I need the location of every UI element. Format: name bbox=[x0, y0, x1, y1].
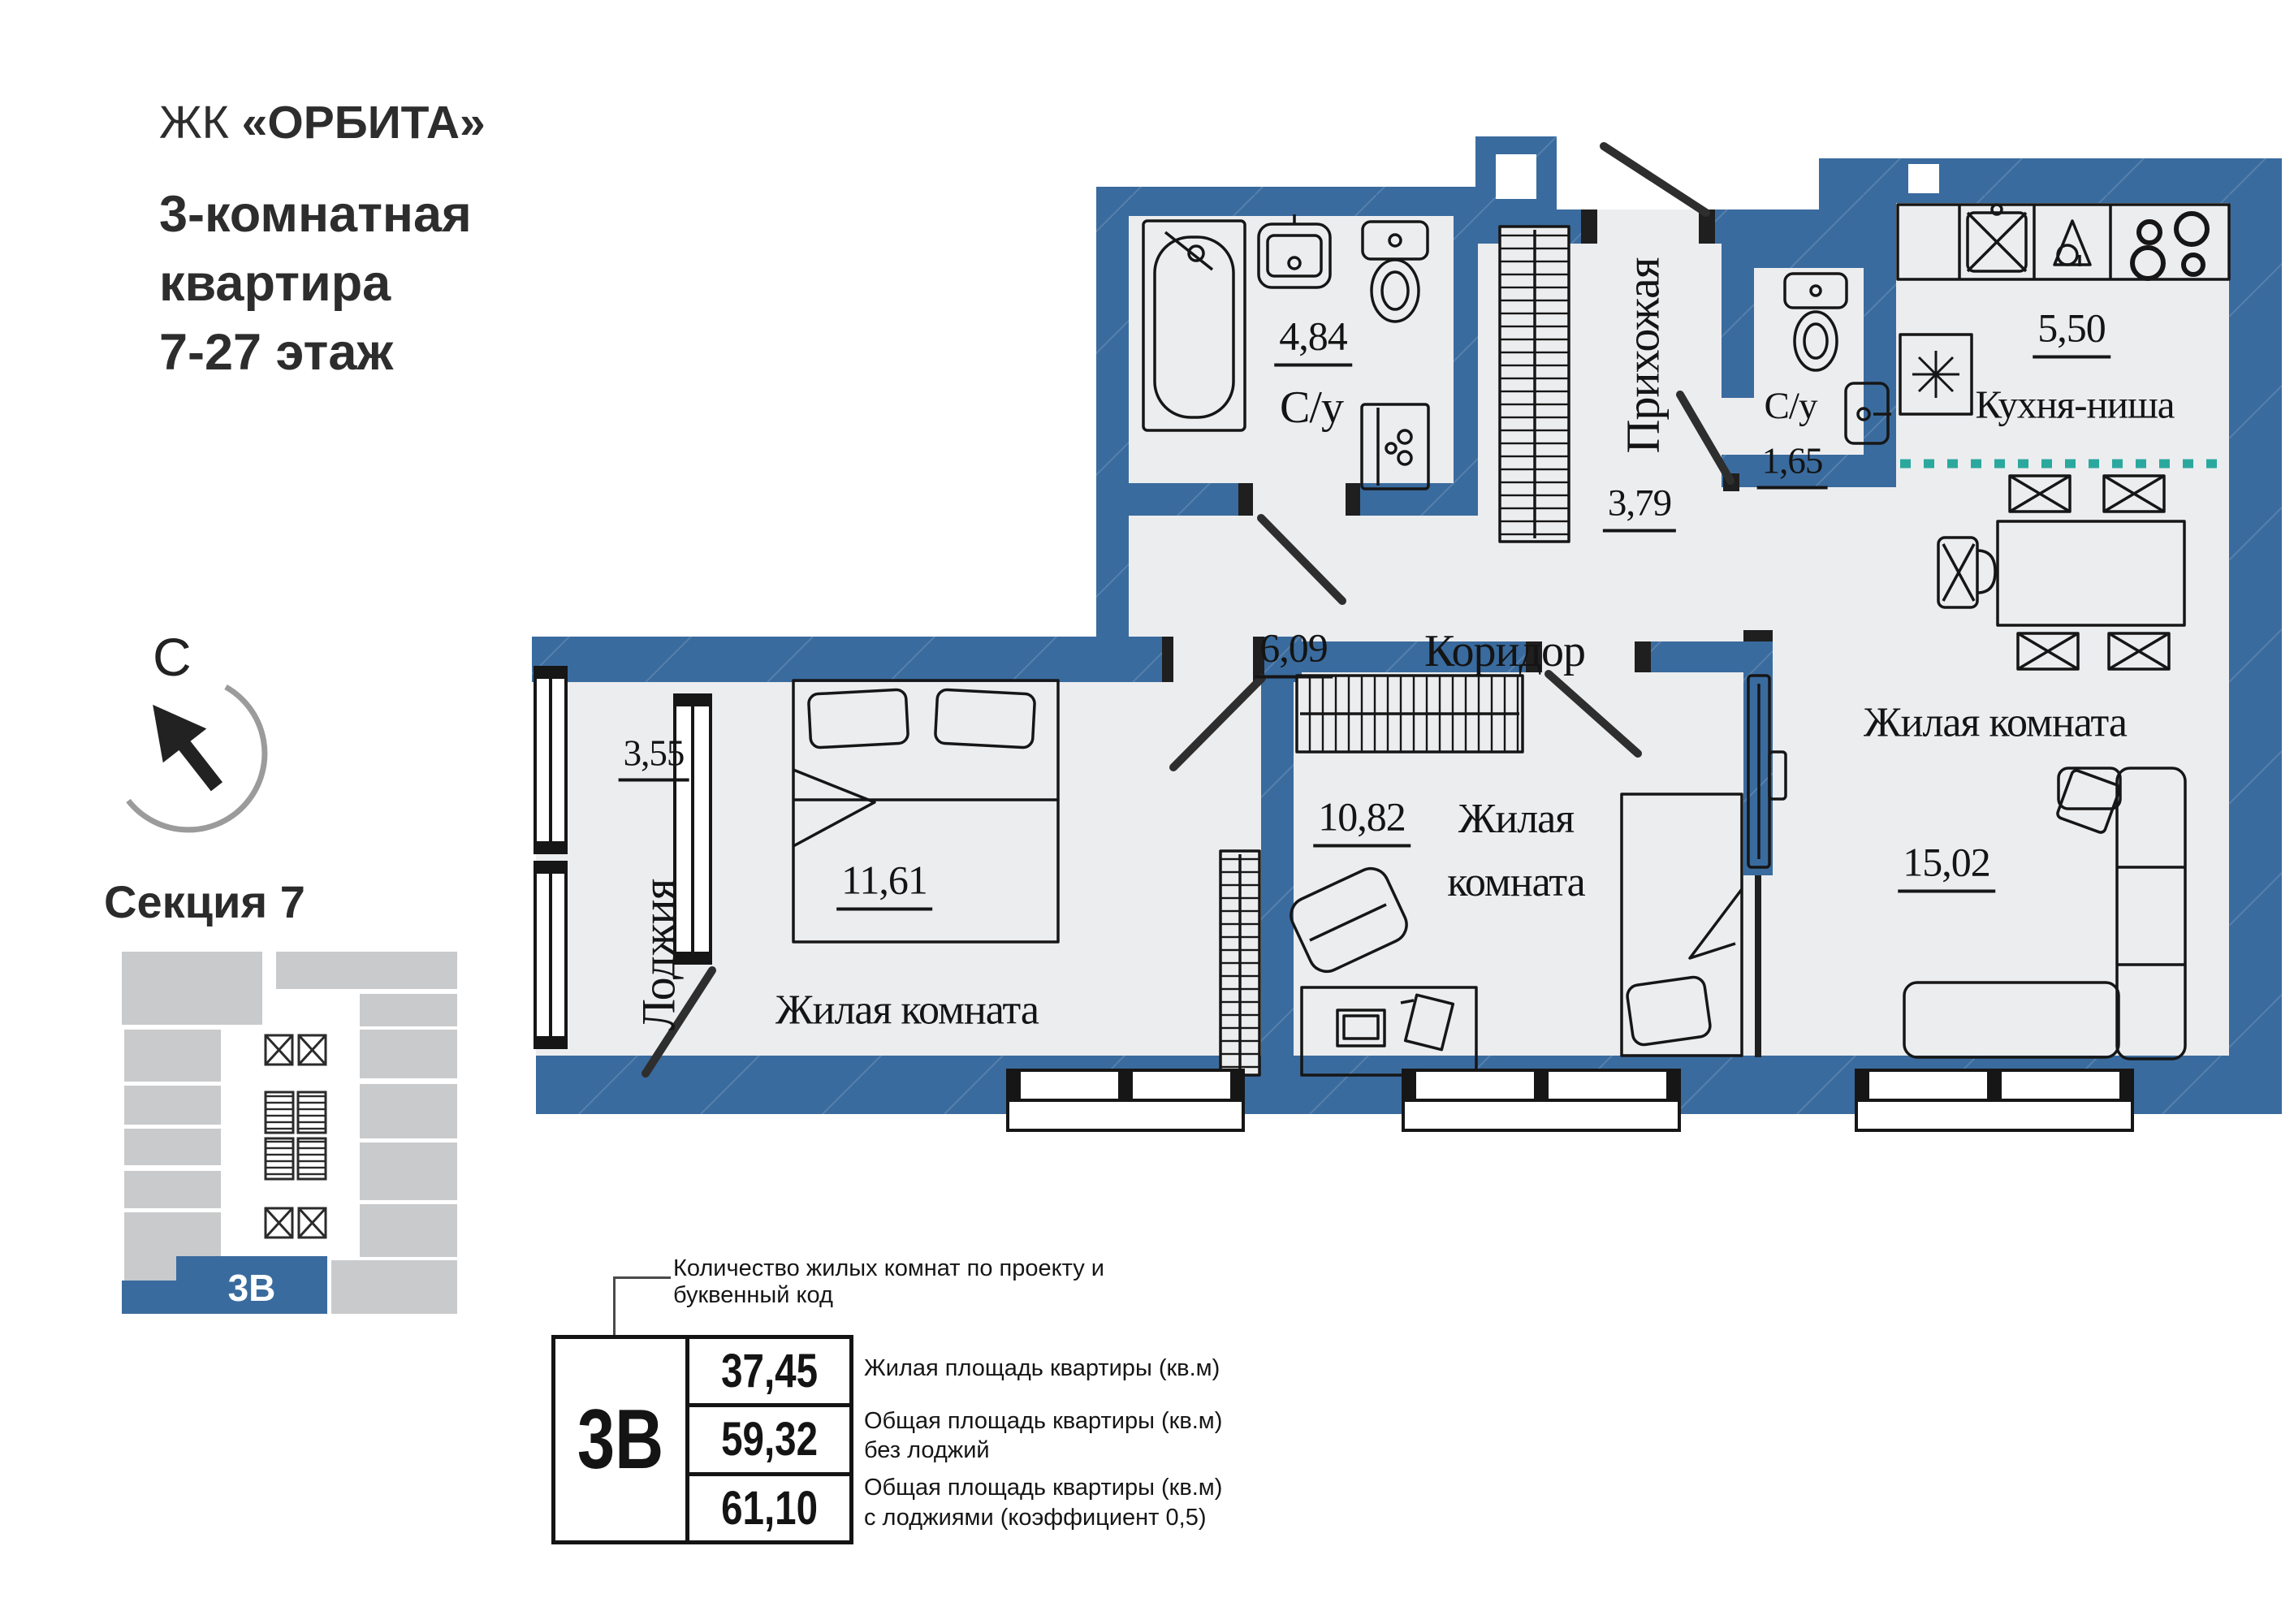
loggia-window-icon bbox=[535, 667, 566, 853]
window-icon bbox=[1008, 1070, 1243, 1130]
loggia-window-icon bbox=[535, 862, 566, 1047]
compass: С bbox=[49, 601, 317, 869]
wardrobe-icon bbox=[1297, 676, 1523, 752]
legend-table: 3В 37,45 59,32 61,10 bbox=[551, 1335, 853, 1544]
vent-shaft bbox=[1908, 164, 1939, 193]
legend-value-total: 59,32 bbox=[685, 1403, 849, 1471]
stairs-icons bbox=[266, 1092, 326, 1179]
bathroom-main-name: С/у bbox=[1280, 382, 1343, 434]
legend-callout-line bbox=[613, 1276, 671, 1337]
legend-value-total-text: 59,32 bbox=[721, 1412, 818, 1466]
bathroom-small-name: С/у bbox=[1765, 384, 1817, 428]
legend-desc-text: Общая площадь квартиры (кв.м) bbox=[864, 1473, 1319, 1502]
bathroom-small-area: 1,65 bbox=[1757, 440, 1828, 490]
legend-desc-text: Общая площадь квартиры (кв.м) bbox=[864, 1406, 1319, 1436]
kitchen-area: 5,50 bbox=[2033, 304, 2110, 359]
complex-prefix: ЖК bbox=[159, 97, 242, 149]
legend-desc-text: Жилая площадь квартиры (кв.м) bbox=[864, 1354, 1319, 1383]
bedroom2-name: Жилая комната bbox=[1411, 788, 1622, 914]
legend-value-living: 37,45 bbox=[685, 1339, 849, 1403]
hallway-name: Прихожая bbox=[1616, 258, 1670, 454]
legend-desc-text2: без лоджий bbox=[864, 1436, 1319, 1465]
legend-descriptions: Жилая площадь квартиры (кв.м) Общая площ… bbox=[864, 1335, 1319, 1536]
elevator-icons bbox=[266, 1035, 326, 1237]
bedroom1-area: 11,61 bbox=[836, 857, 932, 911]
loggia-name: Лоджия bbox=[632, 879, 686, 1031]
legend-desc-row: Общая площадь квартиры (кв.м) без лоджий bbox=[864, 1402, 1319, 1470]
legend-value-total-loggia-text: 61,10 bbox=[721, 1481, 818, 1535]
snowflake-icon bbox=[1912, 351, 1959, 398]
wardrobe-icon bbox=[1500, 227, 1569, 542]
window-icon bbox=[1856, 1070, 2132, 1130]
living-room-area: 15,02 bbox=[1898, 839, 1995, 893]
hallway-area: 3,79 bbox=[1603, 482, 1676, 533]
elevator-icon bbox=[299, 1208, 326, 1237]
legend-unit-code: 3В bbox=[568, 1339, 672, 1540]
entrance-door bbox=[1604, 146, 1706, 213]
bedroom1-name: Жилая комната bbox=[775, 987, 1039, 1034]
section-title: Секция 7 bbox=[104, 875, 305, 928]
complex-name: «ОРБИТА» bbox=[242, 97, 486, 149]
bathroom-main-area: 4,84 bbox=[1274, 313, 1352, 367]
stairs-icon bbox=[266, 1092, 293, 1133]
corridor-name: Коридор bbox=[1424, 625, 1585, 677]
section-map: 3В bbox=[110, 950, 475, 1324]
kitchen-name: Кухня-ниша bbox=[1975, 382, 2174, 428]
elevator-icon bbox=[266, 1208, 292, 1237]
window-icon bbox=[1403, 1070, 1679, 1130]
legend-desc-row: Общая площадь квартиры (кв.м) с лоджиями… bbox=[864, 1469, 1319, 1536]
living-room-name: Жилая комната bbox=[1864, 699, 2127, 747]
loggia-area: 3,55 bbox=[619, 732, 689, 782]
legend-desc-row: Жилая площадь квартиры (кв.м) bbox=[864, 1335, 1319, 1402]
stairs-icon bbox=[266, 1138, 293, 1179]
north-label: С bbox=[153, 627, 192, 687]
vent-shaft bbox=[1496, 154, 1536, 199]
north-arrow-icon bbox=[131, 688, 238, 804]
highlighted-unit-code: 3В bbox=[228, 1267, 276, 1309]
legend-desc-text2: с лоджиями (коэффициент 0,5) bbox=[864, 1503, 1319, 1532]
bedroom2-area: 10,82 bbox=[1313, 793, 1411, 848]
wardrobe-icon bbox=[1220, 851, 1259, 1075]
legend-value-total-loggia: 61,10 bbox=[685, 1472, 849, 1540]
corridor-area: 6,09 bbox=[1255, 624, 1333, 679]
elevator-icon bbox=[266, 1035, 292, 1065]
elevator-icon bbox=[299, 1035, 326, 1065]
page: ЖК «ОРБИТА» 3-комнатная квартира 7-27 эт… bbox=[0, 0, 2294, 1624]
legend-callout: Количество жилых комнат по проекту и бук… bbox=[673, 1255, 1225, 1309]
legend-value-living-text: 37,45 bbox=[721, 1344, 818, 1398]
stairs-icon bbox=[298, 1138, 326, 1179]
floor-plan-drawing bbox=[524, 73, 2294, 1226]
floor-plan: 4,84 С/у Прихожая 3,79 С/у 1,65 5,50 Кух… bbox=[524, 73, 2294, 1226]
stairs-icon bbox=[298, 1092, 326, 1133]
